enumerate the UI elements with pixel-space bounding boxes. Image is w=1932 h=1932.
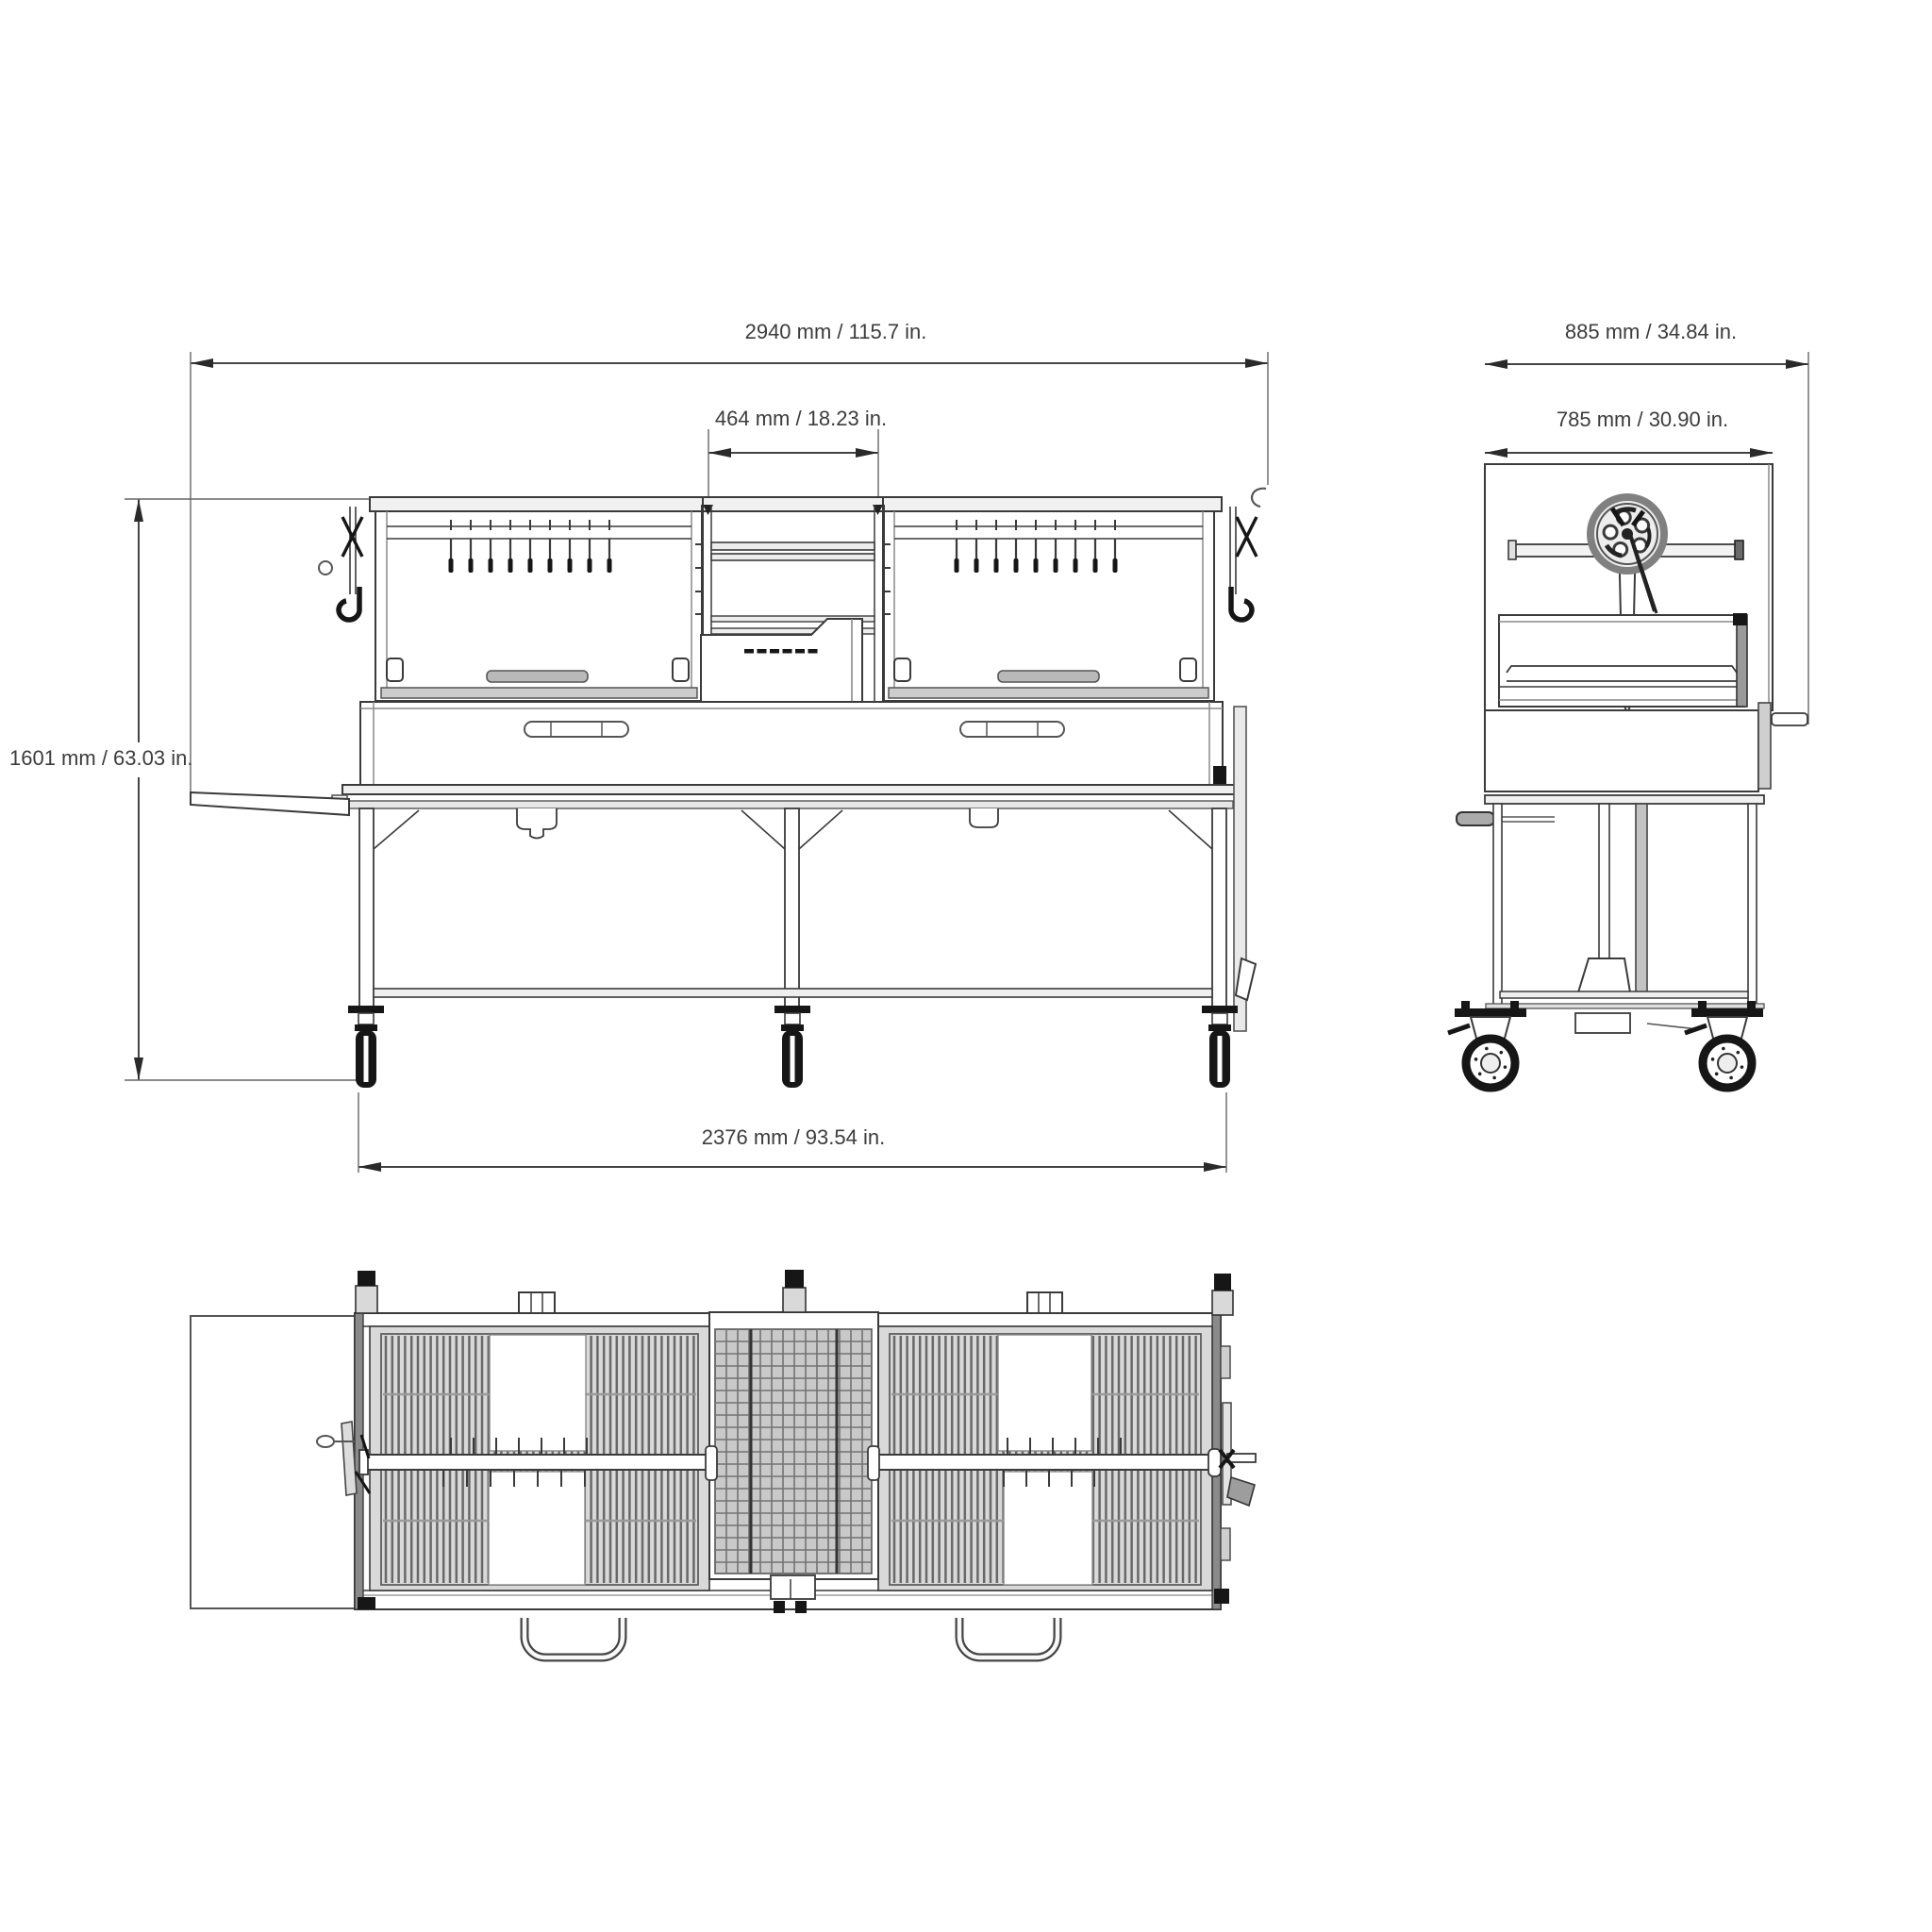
- svg-text:2376 mm / 93.54 in.: 2376 mm / 93.54 in.: [702, 1125, 885, 1149]
- svg-text:464 mm / 18.23 in.: 464 mm / 18.23 in.: [715, 407, 887, 430]
- svg-text:2940 mm / 115.7 in.: 2940 mm / 115.7 in.: [745, 320, 927, 343]
- svg-text:1601 mm / 63.03 in.: 1601 mm / 63.03 in.: [9, 746, 192, 770]
- svg-text:785 mm / 30.90 in.: 785 mm / 30.90 in.: [1557, 408, 1728, 431]
- svg-text:885 mm / 34.84 in.: 885 mm / 34.84 in.: [1565, 320, 1737, 343]
